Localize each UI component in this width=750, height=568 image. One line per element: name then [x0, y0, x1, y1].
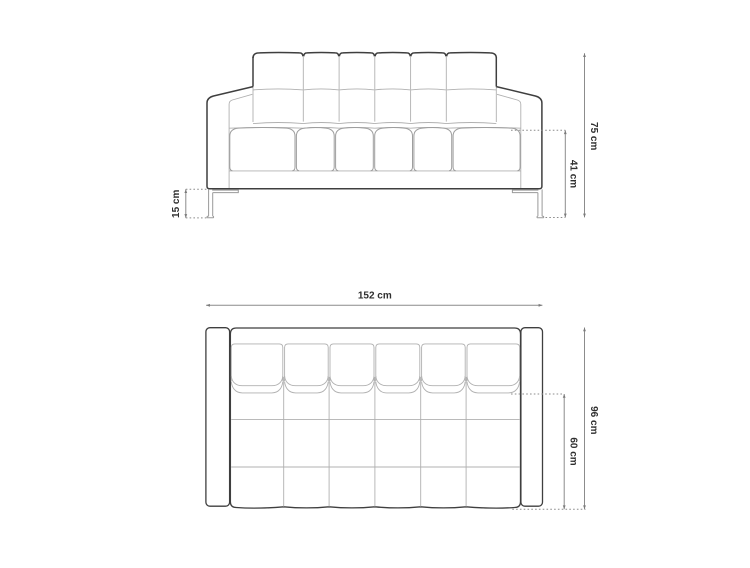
svg-text:152 cm: 152 cm — [358, 290, 392, 301]
svg-text:15 cm: 15 cm — [171, 190, 182, 218]
svg-text:41 cm: 41 cm — [567, 160, 578, 188]
svg-text:96 cm: 96 cm — [588, 406, 599, 434]
svg-text:75 cm: 75 cm — [588, 122, 599, 150]
svg-text:60 cm: 60 cm — [568, 437, 579, 465]
